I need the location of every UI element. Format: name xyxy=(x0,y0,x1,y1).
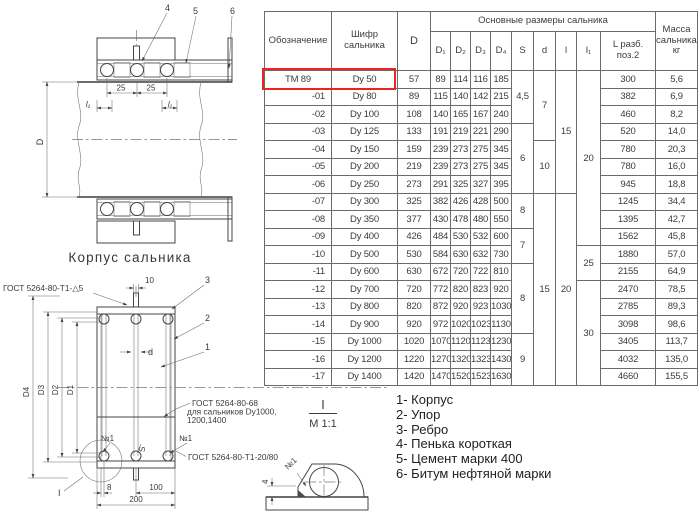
table-cell: -11 xyxy=(265,263,332,281)
gland-body-bottom xyxy=(97,199,232,219)
table-cell: 377 xyxy=(398,211,431,229)
table-cell: 4032 xyxy=(601,351,656,369)
table-cell: 15 xyxy=(534,193,556,386)
table-cell: Dy 300 xyxy=(332,193,398,211)
table-cell: 1220 xyxy=(398,351,431,369)
table-cell: Dy 250 xyxy=(332,176,398,194)
table-cell: -02 xyxy=(265,106,332,124)
table-row: -15Dy 10001020107011201123123093405113,7 xyxy=(265,333,698,351)
table-cell: 18,8 xyxy=(656,176,698,194)
table-cell: 480 xyxy=(471,211,491,229)
table-cell: 780 xyxy=(601,141,656,159)
table-cell: 89,3 xyxy=(656,298,698,316)
table-cell: 215 xyxy=(491,88,512,106)
housing-cap-top xyxy=(97,307,175,314)
table-cell: 1270 xyxy=(431,351,451,369)
table-cell: 140 xyxy=(431,106,451,124)
table-cell: 428 xyxy=(471,193,491,211)
weld-fillet xyxy=(298,490,306,497)
table-cell: 115 xyxy=(431,88,451,106)
table-cell: Dy 125 xyxy=(332,123,398,141)
table-cell: 30 xyxy=(577,281,601,386)
table-cell: 972 xyxy=(431,316,451,334)
table-cell: 500 xyxy=(491,193,512,211)
table-cell: -09 xyxy=(265,228,332,246)
table-cell: 6 xyxy=(512,123,534,193)
table-cell: 395 xyxy=(491,176,512,194)
col-header-D1: D₁ xyxy=(431,32,451,71)
table-cell: -01 xyxy=(265,88,332,106)
packing-block xyxy=(144,63,160,78)
table-cell: 113,7 xyxy=(656,333,698,351)
table-cell: 89 xyxy=(431,71,451,89)
table-row: -04Dy 1501592392732753451078020,3 xyxy=(265,141,698,159)
detail-scale: М 1:1 xyxy=(309,418,337,430)
table-cell: 116 xyxy=(471,71,491,89)
gland-size-table-wrap: Обозначение Шифр сальника D Основные раз… xyxy=(264,11,697,386)
detail-base-plate xyxy=(266,497,368,510)
detail-dim-4: 4 xyxy=(261,479,270,484)
table-cell: 3098 xyxy=(601,316,656,334)
catalog-page: 25 25 l₁ l₁ D 4 5 6 Корпус сальника xyxy=(0,0,700,514)
col-header-S: S xyxy=(512,32,534,71)
table-cell: 2470 xyxy=(601,281,656,299)
table-cell: 34,4 xyxy=(656,193,698,211)
weld-spec-bottom: ГОСТ 5264-80-Т1-20/80 xyxy=(188,452,278,462)
table-cell: 15 xyxy=(556,71,577,194)
hemp-ring xyxy=(131,64,144,77)
table-cell: Dy 150 xyxy=(332,141,398,159)
table-cell: 114 xyxy=(451,71,471,89)
table-cell: 1070 xyxy=(431,333,451,351)
table-cell: Dy 1200 xyxy=(332,351,398,369)
legend-item: 3- Ребро xyxy=(396,423,551,438)
table-cell: 820 xyxy=(451,281,471,299)
table-cell: 135,0 xyxy=(656,351,698,369)
table-cell: 275 xyxy=(471,158,491,176)
table-cell: 720 xyxy=(398,281,431,299)
table-cell: 630 xyxy=(451,246,471,264)
table-row: -09Dy 4004264845305326007156245,8 xyxy=(265,228,698,246)
table-cell: -17 xyxy=(265,368,332,386)
table-cell: 78,5 xyxy=(656,281,698,299)
table-cell: 1630 xyxy=(491,368,512,386)
table-cell: 291 xyxy=(431,176,451,194)
table-cell: Dy 500 xyxy=(332,246,398,264)
table-cell: 872 xyxy=(431,298,451,316)
table-row: -10Dy 50053058463063273025188057,0 xyxy=(265,246,698,264)
table-cell: 20 xyxy=(556,193,577,386)
table-row: ТМ 89Dy 5057891141161854,5715203005,6 xyxy=(265,71,698,89)
table-cell: 45,8 xyxy=(656,228,698,246)
stud-bottom xyxy=(134,221,140,235)
table-cell: 167 xyxy=(471,106,491,124)
table-cell: -06 xyxy=(265,176,332,194)
legend-item: 2- Упор xyxy=(396,408,551,423)
gland-size-table: Обозначение Шифр сальника D Основные раз… xyxy=(264,11,698,386)
table-cell: 8 xyxy=(512,263,534,333)
detail-title: І xyxy=(321,398,324,412)
table-cell: 239 xyxy=(431,141,451,159)
col-header-code: Шифр сальника xyxy=(332,12,398,71)
table-cell: 430 xyxy=(431,211,451,229)
gland-body-top xyxy=(97,60,232,80)
table-cell: 1020 xyxy=(451,316,471,334)
table-cell: 1420 xyxy=(398,368,431,386)
col-header-mass: Масса сальника, кг xyxy=(656,12,698,71)
table-cell: 1323 xyxy=(471,351,491,369)
dim-D: D xyxy=(35,138,45,145)
table-cell: 185 xyxy=(491,71,512,89)
col-header-l: l xyxy=(556,32,577,71)
callout-6: 6 xyxy=(230,6,235,16)
table-cell: 159 xyxy=(398,141,431,159)
table-cell: 273 xyxy=(451,141,471,159)
hemp-ring xyxy=(101,203,114,216)
table-cell: 155,5 xyxy=(656,368,698,386)
detail-ref-label: І xyxy=(58,488,61,498)
col-header-l1: l₁ xyxy=(577,32,601,71)
table-cell: -07 xyxy=(265,193,332,211)
table-cell: 810 xyxy=(491,263,512,281)
table-cell: 426 xyxy=(451,193,471,211)
table-cell: 9 xyxy=(512,333,534,386)
table-cell: 2155 xyxy=(601,263,656,281)
table-cell: -12 xyxy=(265,281,332,299)
table-cell: 1470 xyxy=(431,368,451,386)
table-cell: 820 xyxy=(398,298,431,316)
table-cell: 16,0 xyxy=(656,158,698,176)
hemp-ring xyxy=(131,203,144,216)
table-cell: -15 xyxy=(265,333,332,351)
table-cell: 1230 xyxy=(491,333,512,351)
drawing-caption: Корпус сальника xyxy=(68,250,191,265)
table-cell: 108 xyxy=(398,106,431,124)
table-cell: 1520 xyxy=(451,368,471,386)
table-cell: 221 xyxy=(471,123,491,141)
table-row: -17Dy 1400142014701520152316304660155,5 xyxy=(265,368,698,386)
wall-top xyxy=(97,38,175,60)
table-cell: 823 xyxy=(471,281,491,299)
table-cell: 1562 xyxy=(601,228,656,246)
table-row: -12Dy 70072077282082392030247078,5 xyxy=(265,281,698,299)
table-cell: 7 xyxy=(512,228,534,263)
table-row: -07Dy 30032538242642850081520124534,4 xyxy=(265,193,698,211)
table-row: -16Dy 1200122012701320132314304032135,0 xyxy=(265,351,698,369)
table-cell: Dy 80 xyxy=(332,88,398,106)
table-cell: 325 xyxy=(451,176,471,194)
table-cell: 730 xyxy=(491,246,512,264)
hemp-ring xyxy=(101,64,114,77)
table-cell: 550 xyxy=(491,211,512,229)
table-cell: -16 xyxy=(265,351,332,369)
table-cell: 920 xyxy=(451,298,471,316)
callout-3: 3 xyxy=(205,275,210,285)
table-cell: 14,0 xyxy=(656,123,698,141)
table-cell: 1030 xyxy=(491,298,512,316)
col-header-L: L разб. поз.2 xyxy=(601,32,656,71)
table-cell: Dy 400 xyxy=(332,228,398,246)
table-cell: -03 xyxy=(265,123,332,141)
table-cell: 4660 xyxy=(601,368,656,386)
table-row: -13Dy 8008208729209231030278589,3 xyxy=(265,298,698,316)
table-cell: 7 xyxy=(534,71,556,141)
table-cell: 345 xyxy=(491,141,512,159)
packing-block xyxy=(144,202,160,217)
hemp-ring xyxy=(161,203,174,216)
dim-d: d xyxy=(148,347,153,357)
table-cell: 165 xyxy=(451,106,471,124)
col-header-D2: D₂ xyxy=(451,32,471,71)
col-header-D: D xyxy=(398,12,431,71)
table-cell: Dy 700 xyxy=(332,281,398,299)
table-cell: 325 xyxy=(398,193,431,211)
dim-D2: D2 xyxy=(51,384,60,395)
table-cell: 584 xyxy=(431,246,451,264)
table-cell: 1023 xyxy=(471,316,491,334)
table-cell: 20 xyxy=(577,71,601,246)
detail-weld-no1: №1 xyxy=(283,455,299,471)
table-row: -03Dy 125133191219221290652014,0 xyxy=(265,123,698,141)
table-cell: 142 xyxy=(471,88,491,106)
callout-4: 4 xyxy=(165,3,170,13)
table-cell: 530 xyxy=(398,246,431,264)
table-cell: 345 xyxy=(491,158,512,176)
table-cell: Dy 350 xyxy=(332,211,398,229)
table-cell: 1123 xyxy=(471,333,491,351)
dim-l1-left: l₁ xyxy=(86,100,91,109)
table-cell: 20,3 xyxy=(656,141,698,159)
callout-5: 5 xyxy=(193,6,198,16)
table-row: -11Dy 6006306727207228108215564,9 xyxy=(265,263,698,281)
table-cell: 478 xyxy=(451,211,471,229)
table-cell: 532 xyxy=(471,228,491,246)
table-cell: Dy 100 xyxy=(332,106,398,124)
weld-note-line3: 1200,1400 xyxy=(187,415,227,425)
dim-l1-right: l₁ xyxy=(168,100,173,109)
table-cell: -04 xyxy=(265,141,332,159)
table-cell: 3405 xyxy=(601,333,656,351)
dim-10: 10 xyxy=(145,276,154,285)
table-cell: -08 xyxy=(265,211,332,229)
wall-bottom xyxy=(97,221,175,243)
table-cell: 632 xyxy=(471,246,491,264)
table-cell: 923 xyxy=(471,298,491,316)
table-cell: 327 xyxy=(471,176,491,194)
col-header-D4: D₄ xyxy=(491,32,512,71)
dim-D3: D3 xyxy=(37,384,46,395)
table-cell: -14 xyxy=(265,316,332,334)
table-cell: 57,0 xyxy=(656,246,698,264)
table-cell: 290 xyxy=(491,123,512,141)
table-cell: 57 xyxy=(398,71,431,89)
table-row: -06Dy 25027329132532739594518,8 xyxy=(265,176,698,194)
table-cell: 89 xyxy=(398,88,431,106)
col-header-D3: D₃ xyxy=(471,32,491,71)
dim-25-right: 25 xyxy=(147,84,156,93)
table-cell: Dy 1000 xyxy=(332,333,398,351)
table-row: -01Dy 80891151401422153826,9 xyxy=(265,88,698,106)
table-cell: 25 xyxy=(577,246,601,281)
table-cell: 2785 xyxy=(601,298,656,316)
legend-item: 6- Битум нефтяной марки xyxy=(396,467,551,482)
table-cell: 64,9 xyxy=(656,263,698,281)
table-cell: 920 xyxy=(398,316,431,334)
dim-D1: D1 xyxy=(66,384,75,395)
dim-25-left: 25 xyxy=(117,84,126,93)
pipe-break-right xyxy=(200,82,203,197)
legend-item: 4- Пенька короткая xyxy=(396,437,551,452)
packing-block xyxy=(114,63,130,78)
weld-spec-top: ГОСТ 5264-80-Т1-△5 xyxy=(3,283,84,293)
table-cell: 920 xyxy=(491,281,512,299)
table-cell: Dy 200 xyxy=(332,158,398,176)
table-cell: 484 xyxy=(431,228,451,246)
table-cell: 772 xyxy=(431,281,451,299)
table-cell: 720 xyxy=(451,263,471,281)
table-row: -05Dy 20021923927327534578016,0 xyxy=(265,158,698,176)
table-cell: 1523 xyxy=(471,368,491,386)
weld-mark-no1-right: №1 xyxy=(179,434,193,443)
table-cell: 1130 xyxy=(491,316,512,334)
table-cell: -13 xyxy=(265,298,332,316)
table-cell: 140 xyxy=(451,88,471,106)
table-cell: 239 xyxy=(431,158,451,176)
table-cell: 1245 xyxy=(601,193,656,211)
table-cell: 8 xyxy=(512,193,534,228)
table-cell: ТМ 89 xyxy=(265,71,332,89)
table-cell: 10 xyxy=(534,141,556,194)
table-cell: -05 xyxy=(265,158,332,176)
housing-cap-bottom xyxy=(97,461,175,468)
table-cell: 8,2 xyxy=(656,106,698,124)
packing-block xyxy=(174,202,190,217)
table-cell: Dy 900 xyxy=(332,316,398,334)
table-cell: 530 xyxy=(451,228,471,246)
table-row: -14Dy 900920972102010231130309898,6 xyxy=(265,316,698,334)
table-cell: Dy 600 xyxy=(332,263,398,281)
table-cell: 42,7 xyxy=(656,211,698,229)
dim-100: 100 xyxy=(149,483,163,492)
table-cell: 1395 xyxy=(601,211,656,229)
table-cell: Dy 800 xyxy=(332,298,398,316)
table-cell: Dy 1400 xyxy=(332,368,398,386)
table-cell: Dy 50 xyxy=(332,71,398,89)
table-cell: 1020 xyxy=(398,333,431,351)
dim-8: 8 xyxy=(107,483,112,492)
table-cell: -10 xyxy=(265,246,332,264)
table-cell: 219 xyxy=(451,123,471,141)
dim-D4: D4 xyxy=(22,386,31,397)
legend-item: 5- Цемент марки 400 xyxy=(396,452,551,467)
table-cell: 275 xyxy=(471,141,491,159)
table-cell: 1880 xyxy=(601,246,656,264)
table-cell: 273 xyxy=(451,158,471,176)
parts-legend: 1- Корпус 2- Упор 3- Ребро 4- Пенька кор… xyxy=(396,393,551,482)
col-header-designation: Обозначение xyxy=(265,12,332,71)
stud-top xyxy=(134,46,140,60)
packing-block xyxy=(174,63,190,78)
table-cell: 6,9 xyxy=(656,88,698,106)
table-cell: 273 xyxy=(398,176,431,194)
table-cell: 780 xyxy=(601,158,656,176)
table-cell: 630 xyxy=(398,263,431,281)
table-cell: 133 xyxy=(398,123,431,141)
table-cell: 98,6 xyxy=(656,316,698,334)
table-cell: 4,5 xyxy=(512,71,534,124)
table-cell: 672 xyxy=(431,263,451,281)
table-cell: 240 xyxy=(491,106,512,124)
packing-block xyxy=(114,202,130,217)
table-cell: 5,6 xyxy=(656,71,698,89)
table-cell: 1320 xyxy=(451,351,471,369)
dim-S: S xyxy=(138,447,147,452)
drawing-gland-section: 25 25 l₁ l₁ D 4 5 6 xyxy=(35,3,237,243)
col-header-d: d xyxy=(534,32,556,71)
table-cell: 722 xyxy=(471,263,491,281)
table-cell: 460 xyxy=(601,106,656,124)
callout-1: 1 xyxy=(205,342,210,352)
table-cell: 945 xyxy=(601,176,656,194)
table-cell: 191 xyxy=(431,123,451,141)
table-cell: 382 xyxy=(601,88,656,106)
table-cell: 382 xyxy=(431,193,451,211)
table-row: -08Dy 350377430478480550139542,7 xyxy=(265,211,698,229)
table-cell: 300 xyxy=(601,71,656,89)
weld-mark-no1-left: №1 xyxy=(101,434,115,443)
col-header-group: Основные размеры сальника xyxy=(431,12,656,32)
table-cell: 426 xyxy=(398,228,431,246)
table-cell: 600 xyxy=(491,228,512,246)
dim-200: 200 xyxy=(129,495,143,504)
callout-2: 2 xyxy=(205,313,210,323)
legend-item: 1- Корпус xyxy=(396,393,551,408)
table-cell: 1120 xyxy=(451,333,471,351)
table-row: -02Dy 1001081401651672404608,2 xyxy=(265,106,698,124)
table-cell: 219 xyxy=(398,158,431,176)
table-cell: 1430 xyxy=(491,351,512,369)
table-cell: 520 xyxy=(601,123,656,141)
hemp-ring xyxy=(161,64,174,77)
